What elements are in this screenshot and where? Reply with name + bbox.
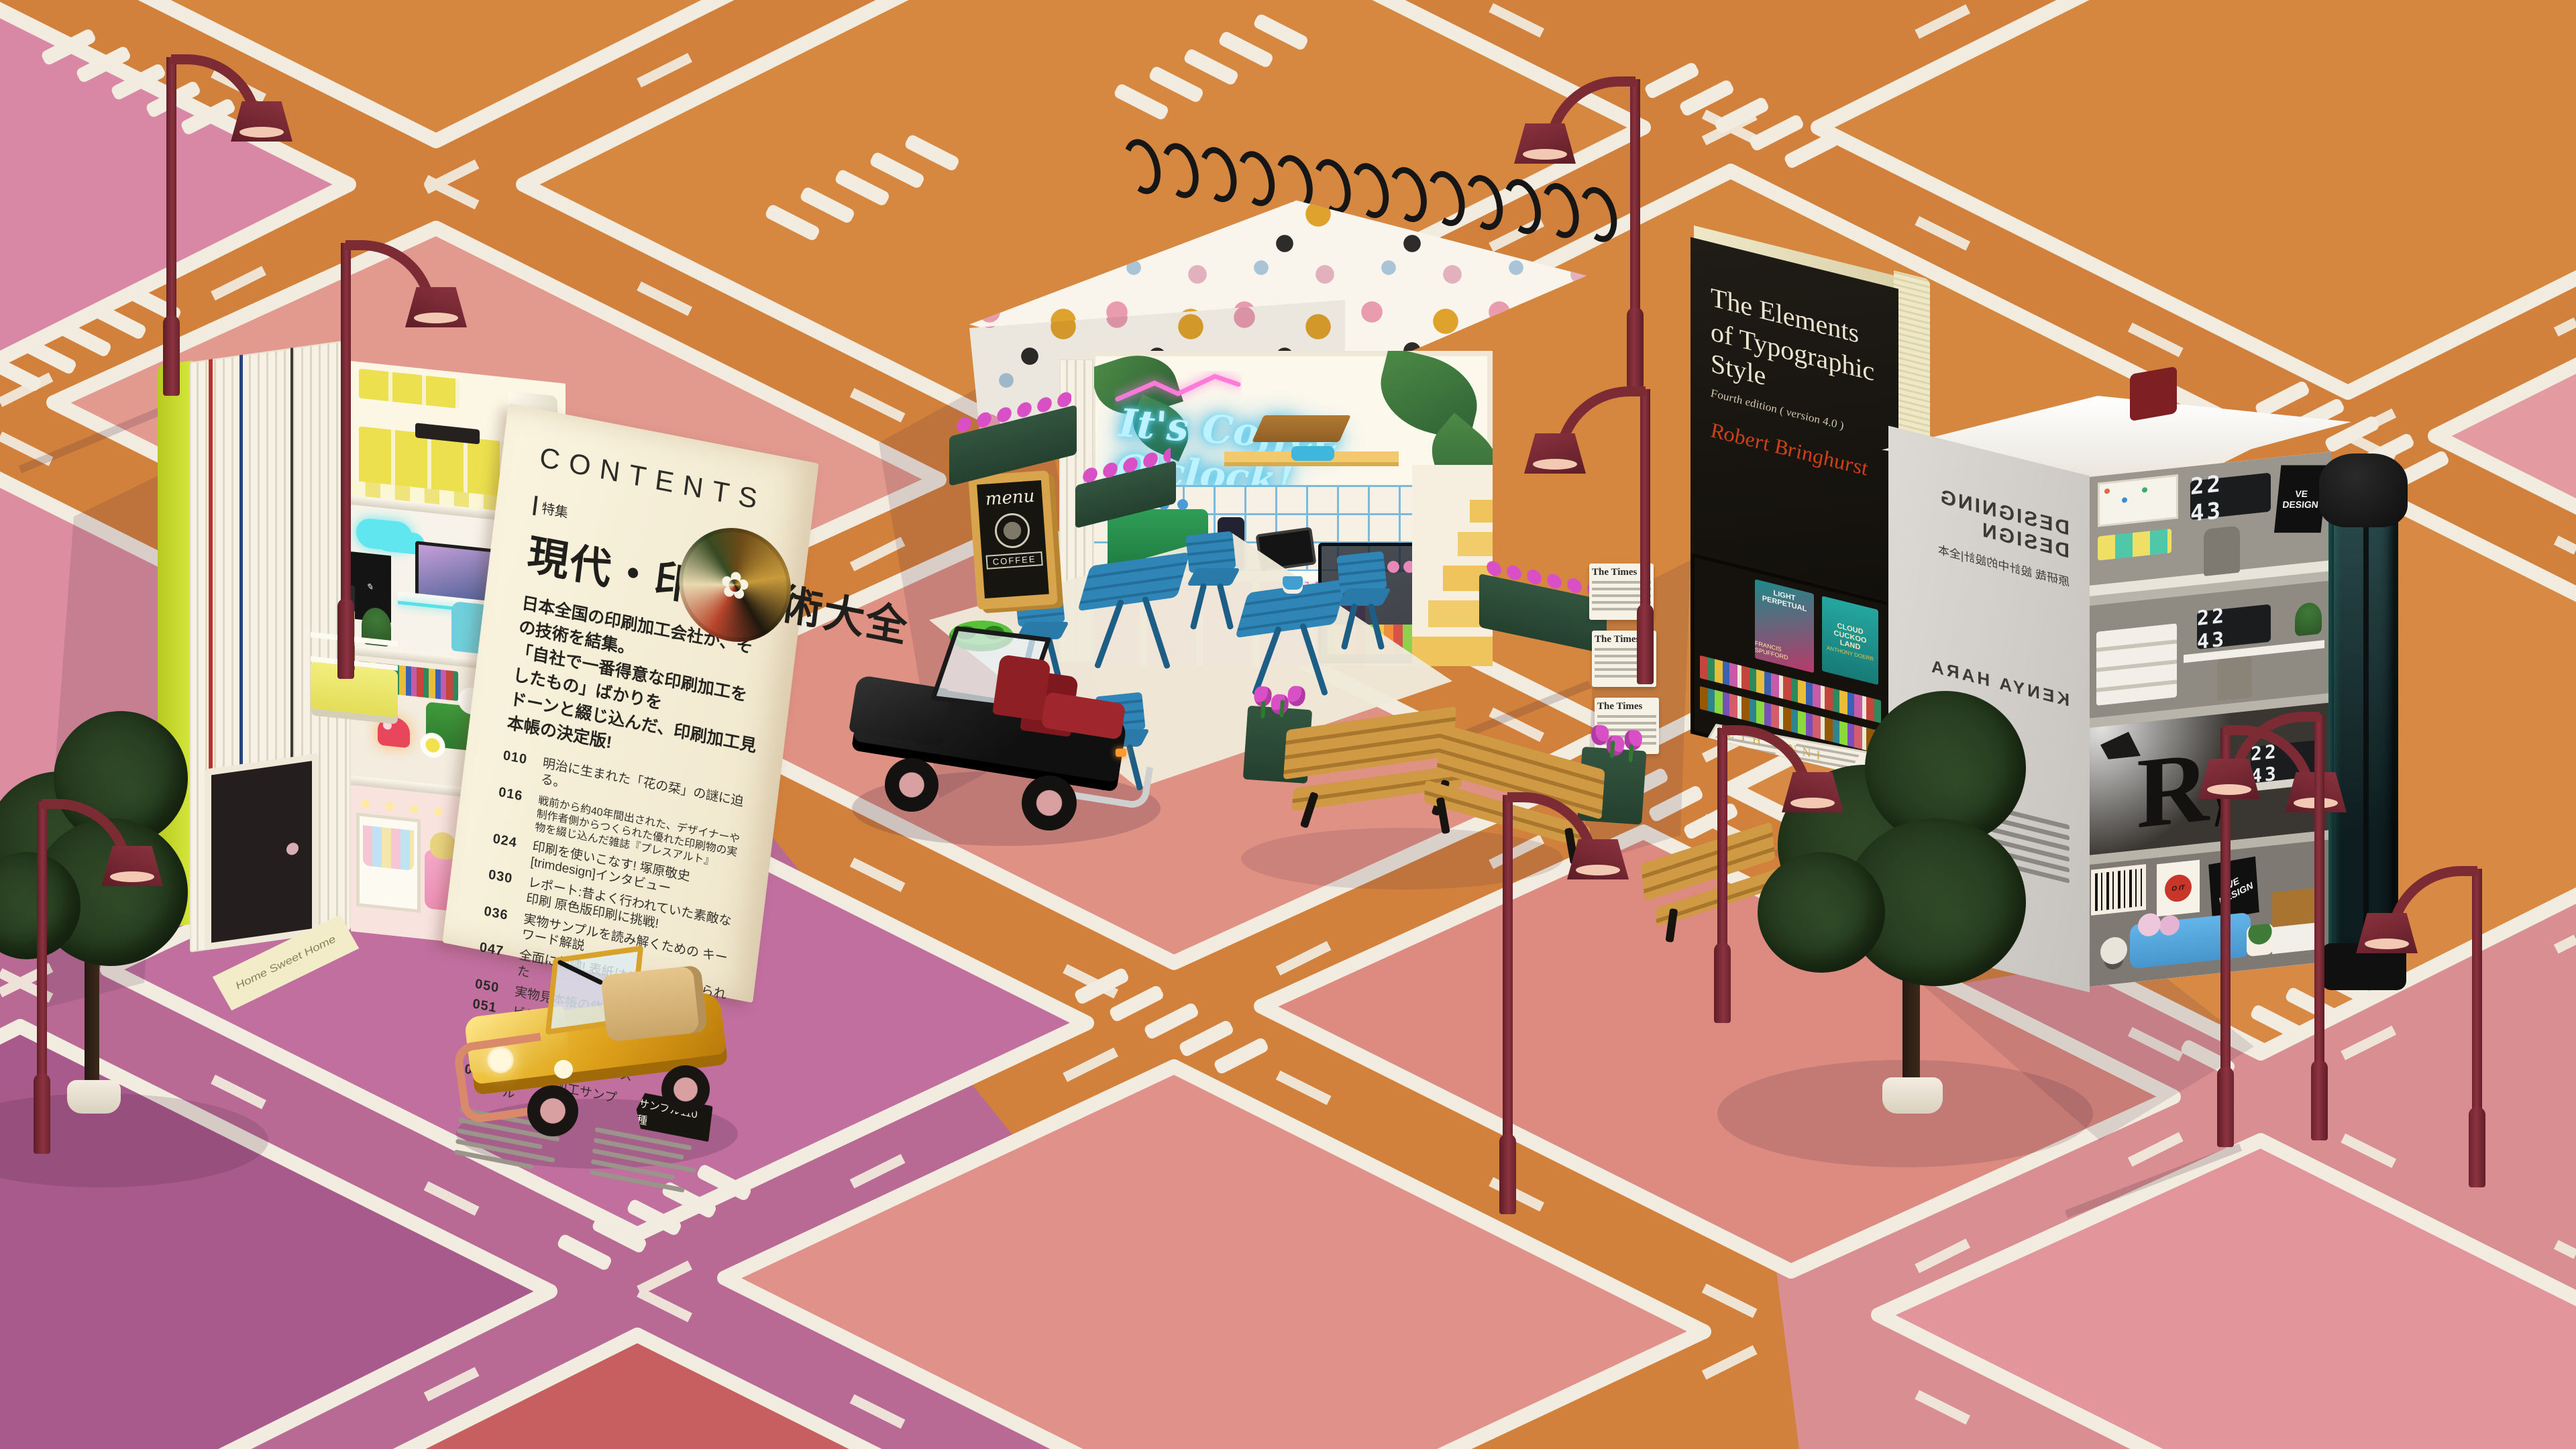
mushroom-lamp-icon bbox=[378, 715, 410, 748]
newspaper-masthead: The Times bbox=[1597, 701, 1642, 712]
tail-light-icon bbox=[1116, 749, 1126, 757]
door-knob-icon bbox=[286, 842, 299, 856]
red-seats bbox=[992, 654, 1051, 721]
menu-chalkboard: menu COFFEE bbox=[968, 470, 1058, 610]
desk-monitor-clock: 22 43 bbox=[2197, 604, 2271, 650]
feature-label: 特集 bbox=[533, 496, 570, 522]
jeep-seats bbox=[600, 965, 708, 1042]
table-top bbox=[1077, 552, 1190, 611]
elevator-cap bbox=[2319, 453, 2408, 527]
poster-author: FRANCIS SPUFFORD bbox=[1755, 639, 1814, 667]
hanging-clothes bbox=[363, 825, 414, 871]
office-chair bbox=[2217, 653, 2252, 700]
menu-tag: COFFEE bbox=[985, 551, 1043, 570]
black-convertible bbox=[842, 617, 1150, 832]
gold-jeep bbox=[463, 926, 745, 1140]
front-door bbox=[205, 753, 319, 951]
street-lamp bbox=[341, 243, 488, 679]
street-lamp bbox=[166, 57, 314, 396]
flip-clock: 22 43 bbox=[2190, 473, 2271, 521]
street-lamp bbox=[1717, 728, 1865, 1023]
side-table bbox=[2100, 936, 2127, 965]
street-lamp bbox=[1503, 795, 1650, 1214]
wheel bbox=[661, 1065, 710, 1114]
blue-cushion-icon bbox=[1291, 446, 1334, 461]
coffee-doodle-icon bbox=[994, 512, 1031, 549]
barcode-wall-art bbox=[2095, 869, 2142, 911]
contents-header: CONTENTS bbox=[538, 441, 789, 521]
wardrobe bbox=[356, 812, 421, 913]
rooftop-tank-icon bbox=[2130, 366, 2177, 421]
lily-flower-icon: ✿ bbox=[718, 561, 753, 608]
street-lamp bbox=[1503, 389, 1650, 684]
wheel bbox=[527, 1085, 578, 1136]
spinner-book-cover: CLOUD CUCKOO LAND ANTHONY DOERR bbox=[1822, 596, 1878, 685]
yellow-staircase bbox=[1412, 465, 1493, 666]
isometric-book-city-render: { "palette": { "road_orange": "#d2813c",… bbox=[0, 0, 2576, 1449]
office-chair bbox=[2204, 525, 2240, 576]
coffee-cup-icon bbox=[1283, 576, 1303, 590]
pinboard bbox=[2098, 474, 2178, 527]
street-lamp bbox=[2177, 714, 2324, 1140]
street-lamp bbox=[37, 802, 184, 1154]
chalkboard-face: menu COFFEE bbox=[977, 480, 1049, 598]
contents-page: CONTENTS 特集 現代・印刷美術大全 ✿ 日本全国の印刷加工会社が、その技… bbox=[442, 403, 818, 1003]
wood-table bbox=[1252, 415, 1351, 442]
pink-pillow-icon bbox=[2138, 912, 2161, 938]
file-trays bbox=[2098, 529, 2171, 561]
poster-title: LIGHT PERPETUAL bbox=[1758, 586, 1811, 614]
menu-title: menu bbox=[985, 486, 1035, 510]
drawer-cabinet bbox=[2096, 623, 2177, 706]
plant-icon bbox=[2295, 602, 2322, 637]
wheel bbox=[1022, 775, 1077, 830]
shelf-poster: LIGHT PERPETUAL FRANCIS SPUFFORD bbox=[1755, 579, 1814, 673]
street-lamp bbox=[2334, 869, 2482, 1187]
wheel bbox=[885, 758, 938, 812]
book-cover-front: The Elements of Typographic Style Fourth… bbox=[1690, 237, 1898, 604]
